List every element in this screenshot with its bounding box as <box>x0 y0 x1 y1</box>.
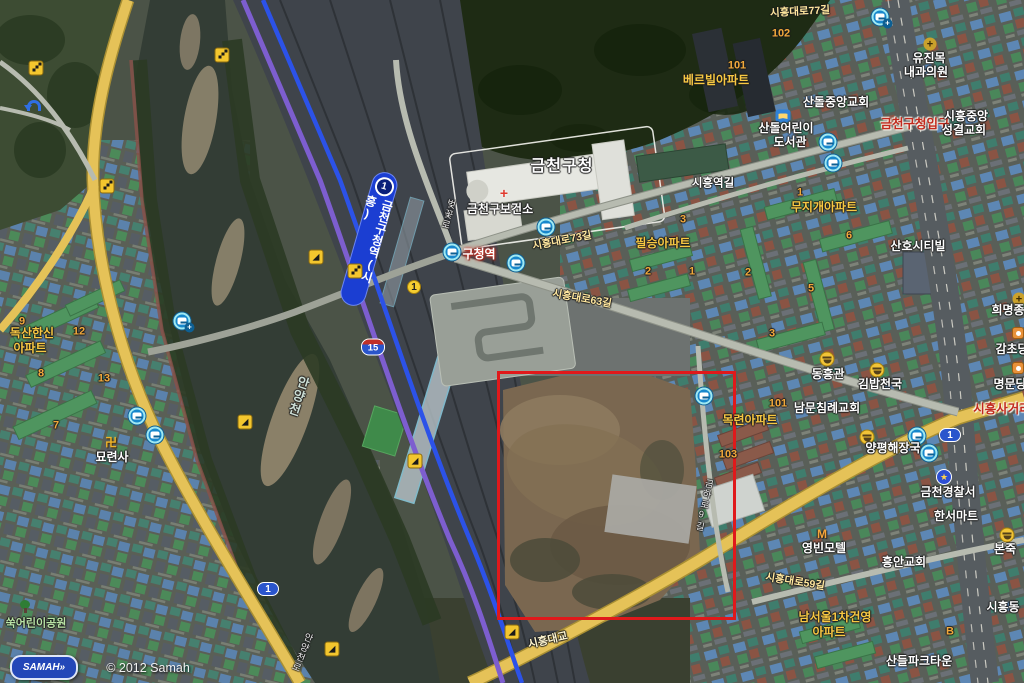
line1-badge-icon: 1 <box>372 175 395 198</box>
samah-logo: SAMAH» <box>10 655 78 680</box>
highlight-rectangle <box>497 371 736 620</box>
satellite-map[interactable]: 1 금천구청역(시흥) ++◢◢◢◢◢11115★卍+++M 시흥대로77길10… <box>0 0 1024 683</box>
